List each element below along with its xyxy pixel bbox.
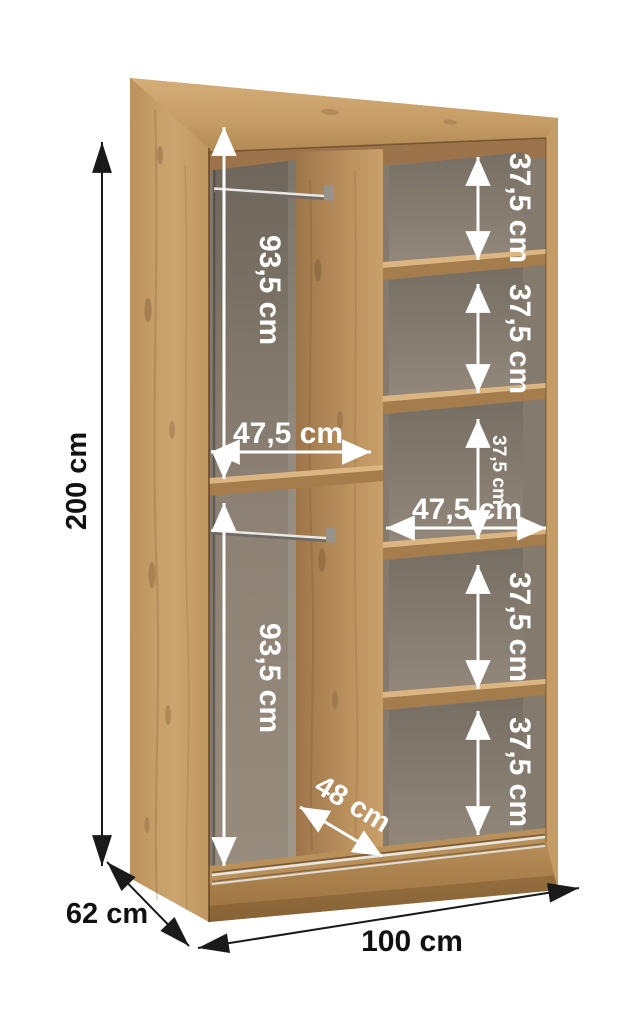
- wood-knot: [165, 705, 171, 725]
- depth-dimension-label: 62 cm: [66, 898, 148, 930]
- wood-knot: [315, 259, 322, 281]
- rail-bracket: [324, 185, 334, 201]
- wardrobe-dimension-diagram: 93,5 cm 93,5 cm 47,5 cm 48 cm 37,5 cm 37…: [0, 0, 635, 1024]
- shelf-spacing-label-2: 37,5 cm: [503, 284, 536, 394]
- left-back-panel-edge-highlight: [288, 160, 296, 866]
- wood-knot: [149, 562, 156, 588]
- divider-panel: [296, 149, 383, 866]
- wood-knot: [169, 421, 175, 439]
- wardrobe-diagram-canvas: 93,5 cm 93,5 cm 47,5 cm 48 cm 37,5 cm 37…: [0, 0, 635, 1024]
- wood-knot: [319, 548, 326, 572]
- left-compartment-width-label: 47,5 cm: [233, 417, 343, 450]
- left-side-panel: [130, 78, 209, 922]
- rail-bracket: [326, 527, 336, 543]
- right-back-panel-5: [389, 698, 523, 851]
- wood-knot: [157, 146, 163, 164]
- height-dimension-label: 200 cm: [61, 432, 93, 530]
- lower-hanging-height-label: 93,5 cm: [253, 623, 286, 733]
- right-compartment-width-label: 47,5 cm: [412, 493, 522, 526]
- right-back-panel-2: [389, 267, 523, 401]
- width-dimension-label: 100 cm: [361, 925, 463, 958]
- wood-knot: [144, 817, 149, 833]
- shelf-spacing-label-4: 37,5 cm: [503, 572, 536, 682]
- wood-knot: [332, 691, 338, 709]
- shelf-spacing-label-1: 37,5 cm: [503, 153, 536, 263]
- right-back-panel-4: [389, 548, 523, 697]
- right-side-strip: [546, 118, 558, 890]
- shelf-spacing-label-5: 37,5 cm: [503, 717, 536, 827]
- upper-hanging-height-label: 93,5 cm: [253, 235, 286, 345]
- right-back-panel-1: [389, 152, 523, 267]
- wood-knot: [145, 298, 152, 322]
